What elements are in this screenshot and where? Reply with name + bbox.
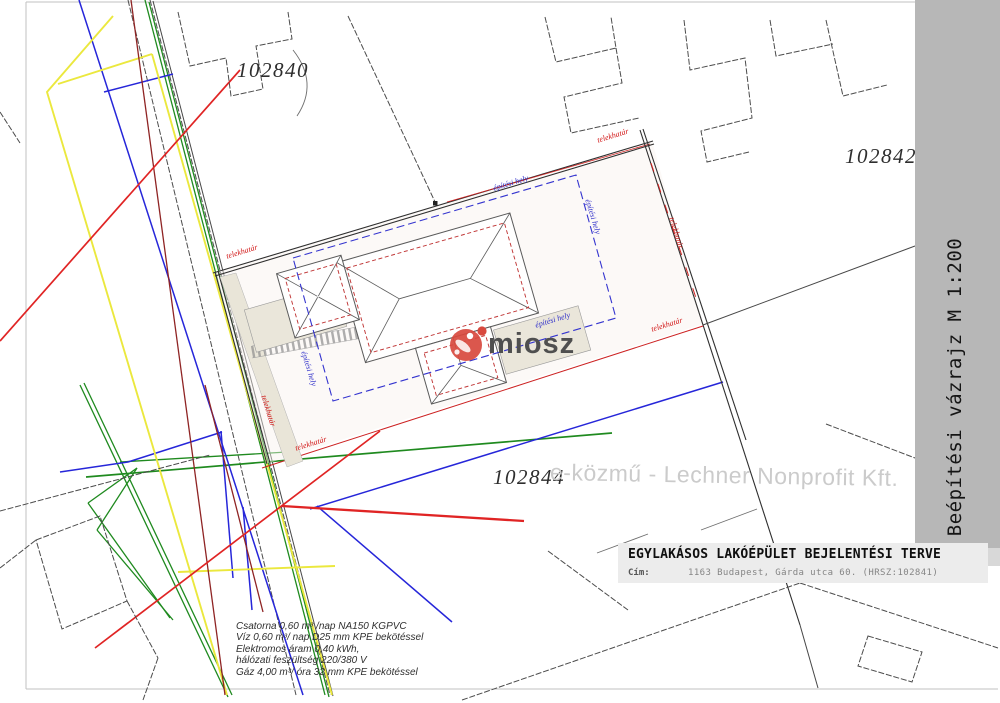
utilities-note-line: Víz 0,60 m³/ nap D25 mm KPE bekötéssel [236,632,423,643]
neighbor-parcels-bottomleft [0,455,210,700]
miosz-logo-text: miosz [488,328,575,361]
utilities-note-line: Csatorna 0,60 m³ /nap NA150 KGPVC [236,621,423,632]
title-block-heading: EGYLAKÁSOS LAKÓÉPÜLET BEJELENTÉSI TERVE [628,547,941,562]
address-label: Cím: [628,568,650,578]
parcel-number-102842: 102842 [845,144,917,169]
parcel-number-102840: 102840 [237,58,309,83]
address-value: 1163 Budapest, Gárda utca 60. (HRSZ:1028… [688,568,938,578]
site-plan-page: 102840 102842 102844 telekhatár telekhat… [0,0,1000,703]
utilities-note-line: Gáz 4,00 m³/ óra 32 mm KPE bekötéssel [236,667,423,678]
utilities-note-line: hálózati feszültség 220/380 V [236,655,423,666]
title-block: EGYLAKÁSOS LAKÓÉPÜLET BEJELENTÉSI TERVE … [618,543,988,583]
drawing-title-vertical: Beépítési vázrajz M 1:200 [944,237,970,537]
utilities-note: Csatorna 0,60 m³ /nap NA150 KGPVC Víz 0,… [236,621,423,678]
utilities-note-line: Elektromos áram 0,40 kWh, [236,644,423,655]
